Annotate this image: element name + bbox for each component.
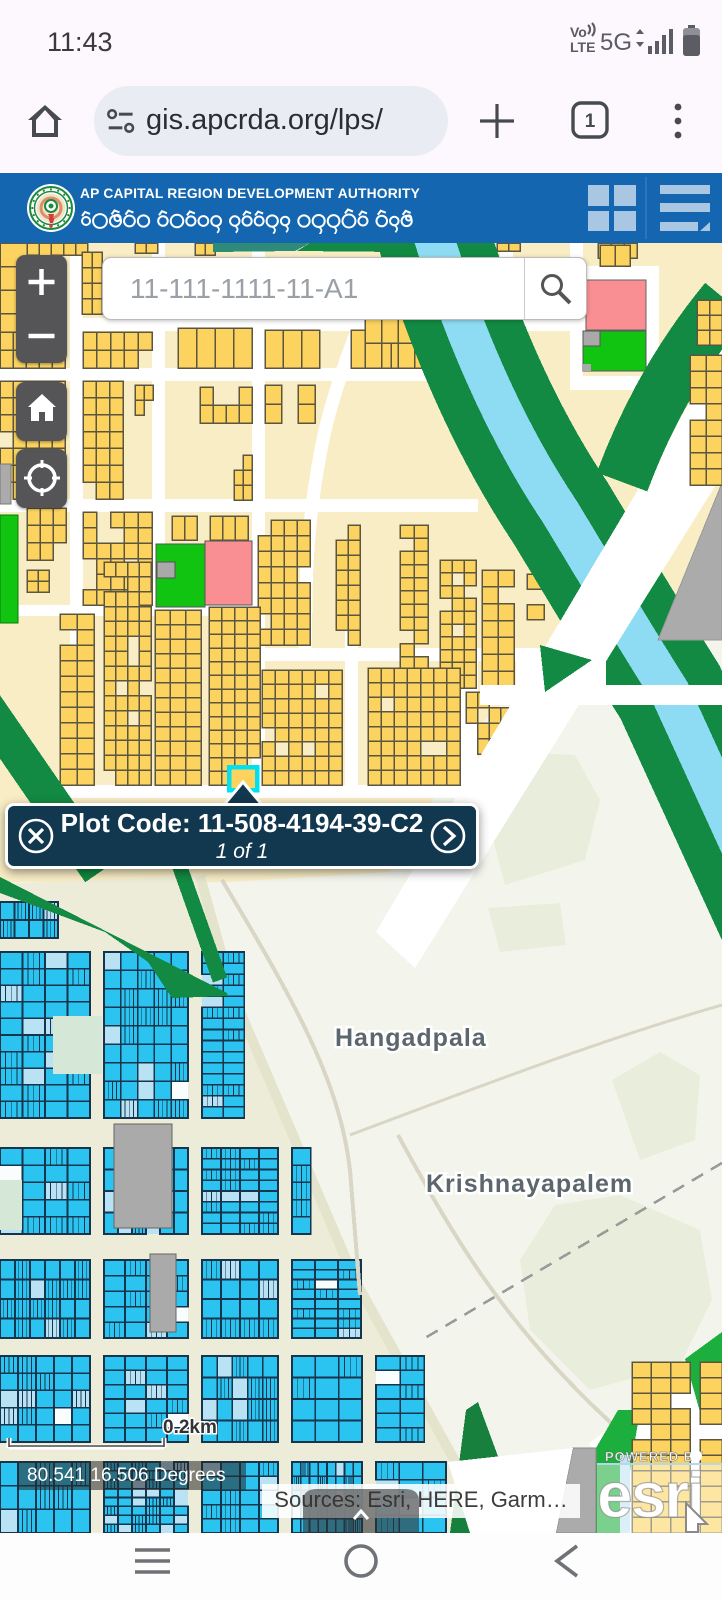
svg-text:Krishnayapalem: Krishnayapalem <box>426 1170 633 1198</box>
svg-text:Vo: Vo <box>570 24 587 40</box>
svg-text:LTE: LTE <box>570 39 595 55</box>
svg-text:1: 1 <box>585 111 596 132</box>
svg-text:5G: 5G <box>600 29 632 56</box>
svg-text:Hangadpala: Hangadpala <box>335 1024 487 1052</box>
svg-text:0.2km: 0.2km <box>163 1417 217 1438</box>
